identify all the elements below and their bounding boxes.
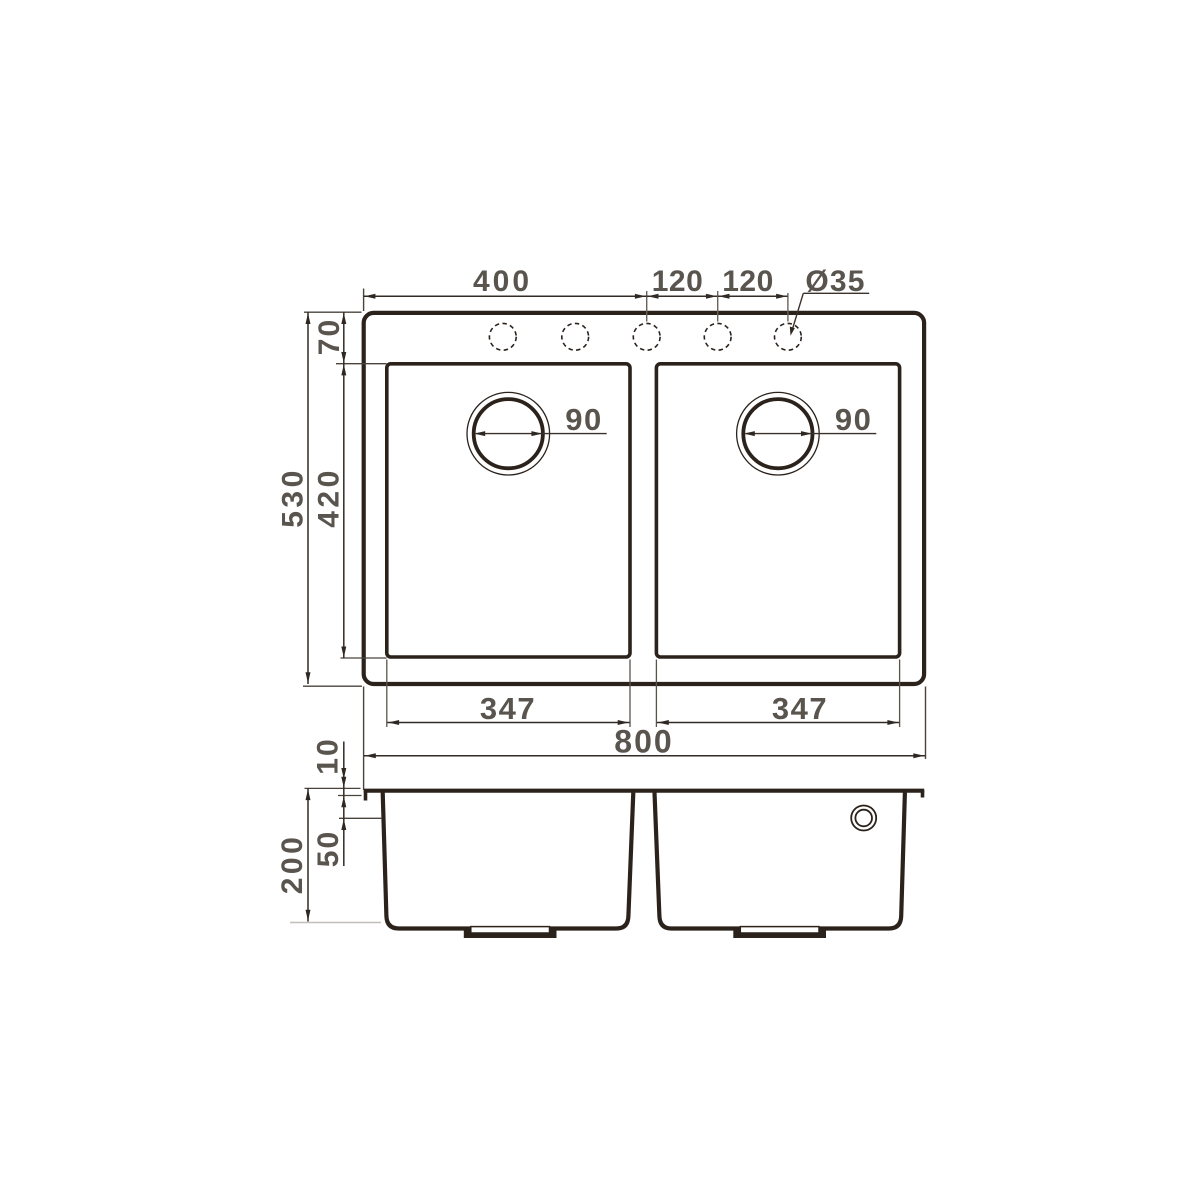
svg-text:530: 530 bbox=[277, 467, 310, 528]
svg-text:70: 70 bbox=[313, 318, 346, 355]
svg-text:800: 800 bbox=[614, 724, 673, 760]
svg-text:400: 400 bbox=[473, 265, 532, 298]
svg-text:347: 347 bbox=[772, 691, 828, 726]
svg-text:200: 200 bbox=[276, 834, 309, 895]
svg-text:90: 90 bbox=[835, 402, 872, 437]
svg-text:90: 90 bbox=[565, 402, 602, 437]
svg-text:420: 420 bbox=[313, 467, 346, 528]
svg-text:347: 347 bbox=[480, 691, 536, 726]
svg-text:50: 50 bbox=[312, 830, 345, 867]
svg-text:120: 120 bbox=[722, 265, 774, 298]
svg-text:120: 120 bbox=[652, 265, 704, 298]
svg-text:10: 10 bbox=[312, 737, 345, 774]
